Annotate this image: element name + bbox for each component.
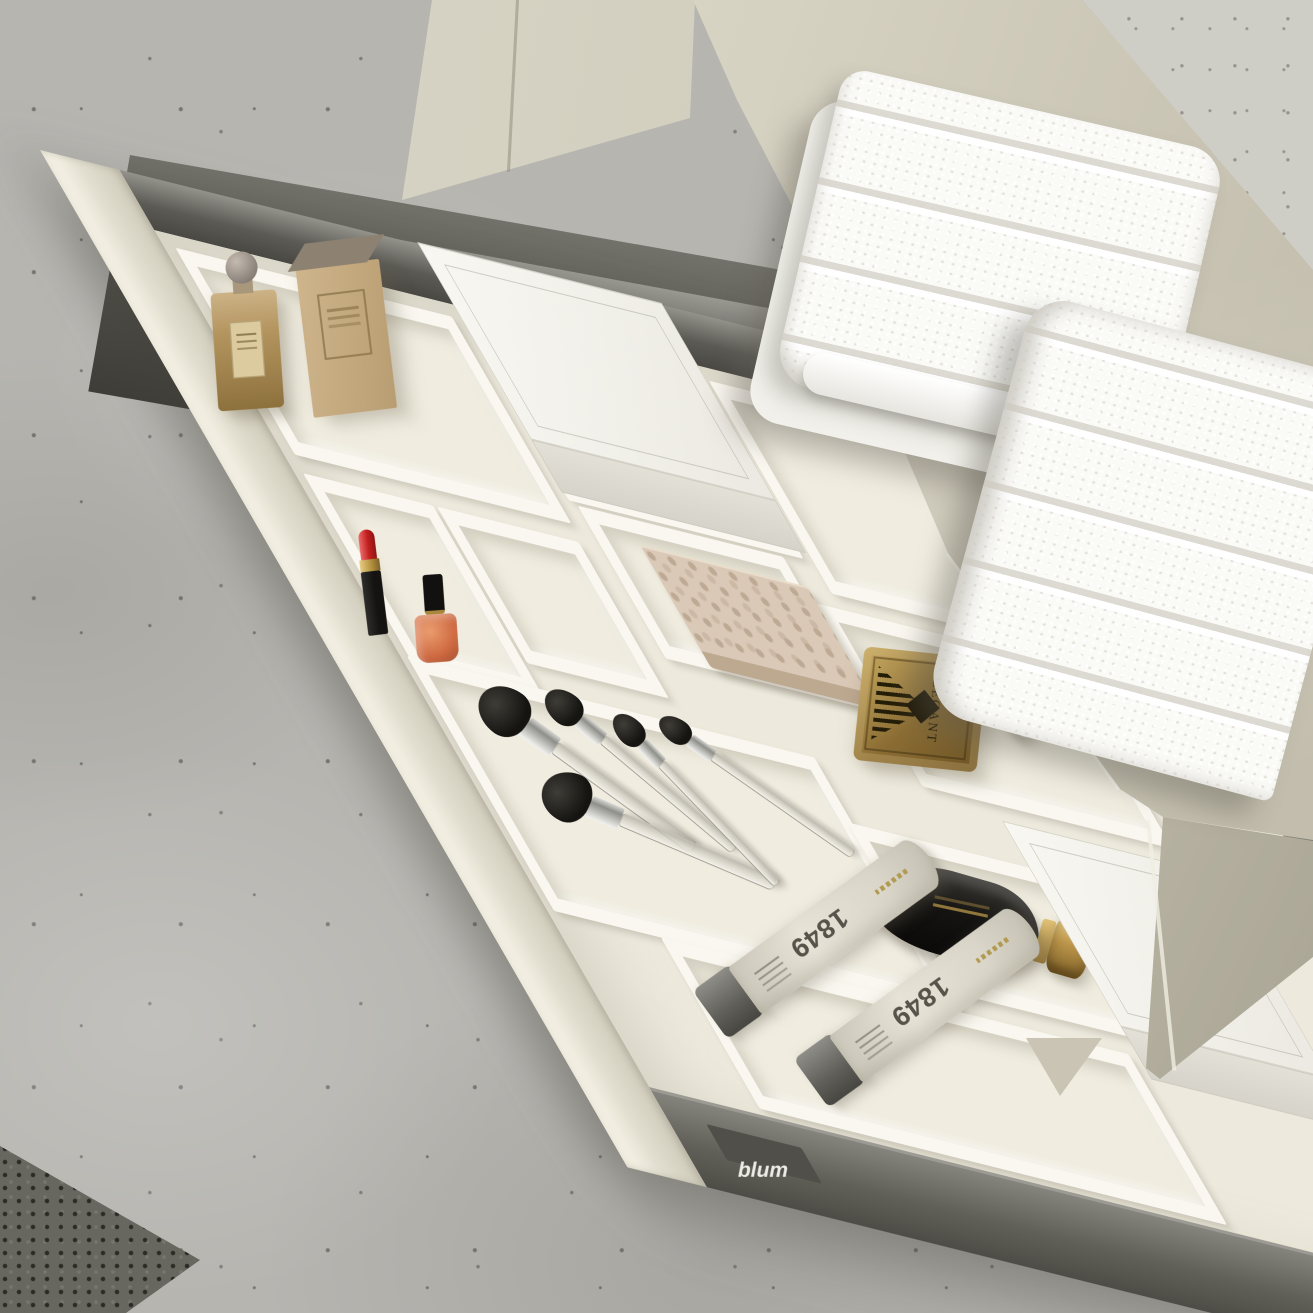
bottle-label bbox=[229, 320, 265, 378]
nail-polish-cap bbox=[422, 574, 445, 615]
perfume-carton-box bbox=[296, 259, 398, 418]
nail-polish-glass bbox=[414, 613, 459, 664]
bathroom-drawer-photo: ELEGANT 1849 1849 bbox=[0, 0, 1313, 1313]
blum-logo: blum bbox=[738, 1159, 788, 1182]
carton-label-frame bbox=[317, 289, 373, 360]
amber-perfume-bottle bbox=[210, 289, 284, 411]
